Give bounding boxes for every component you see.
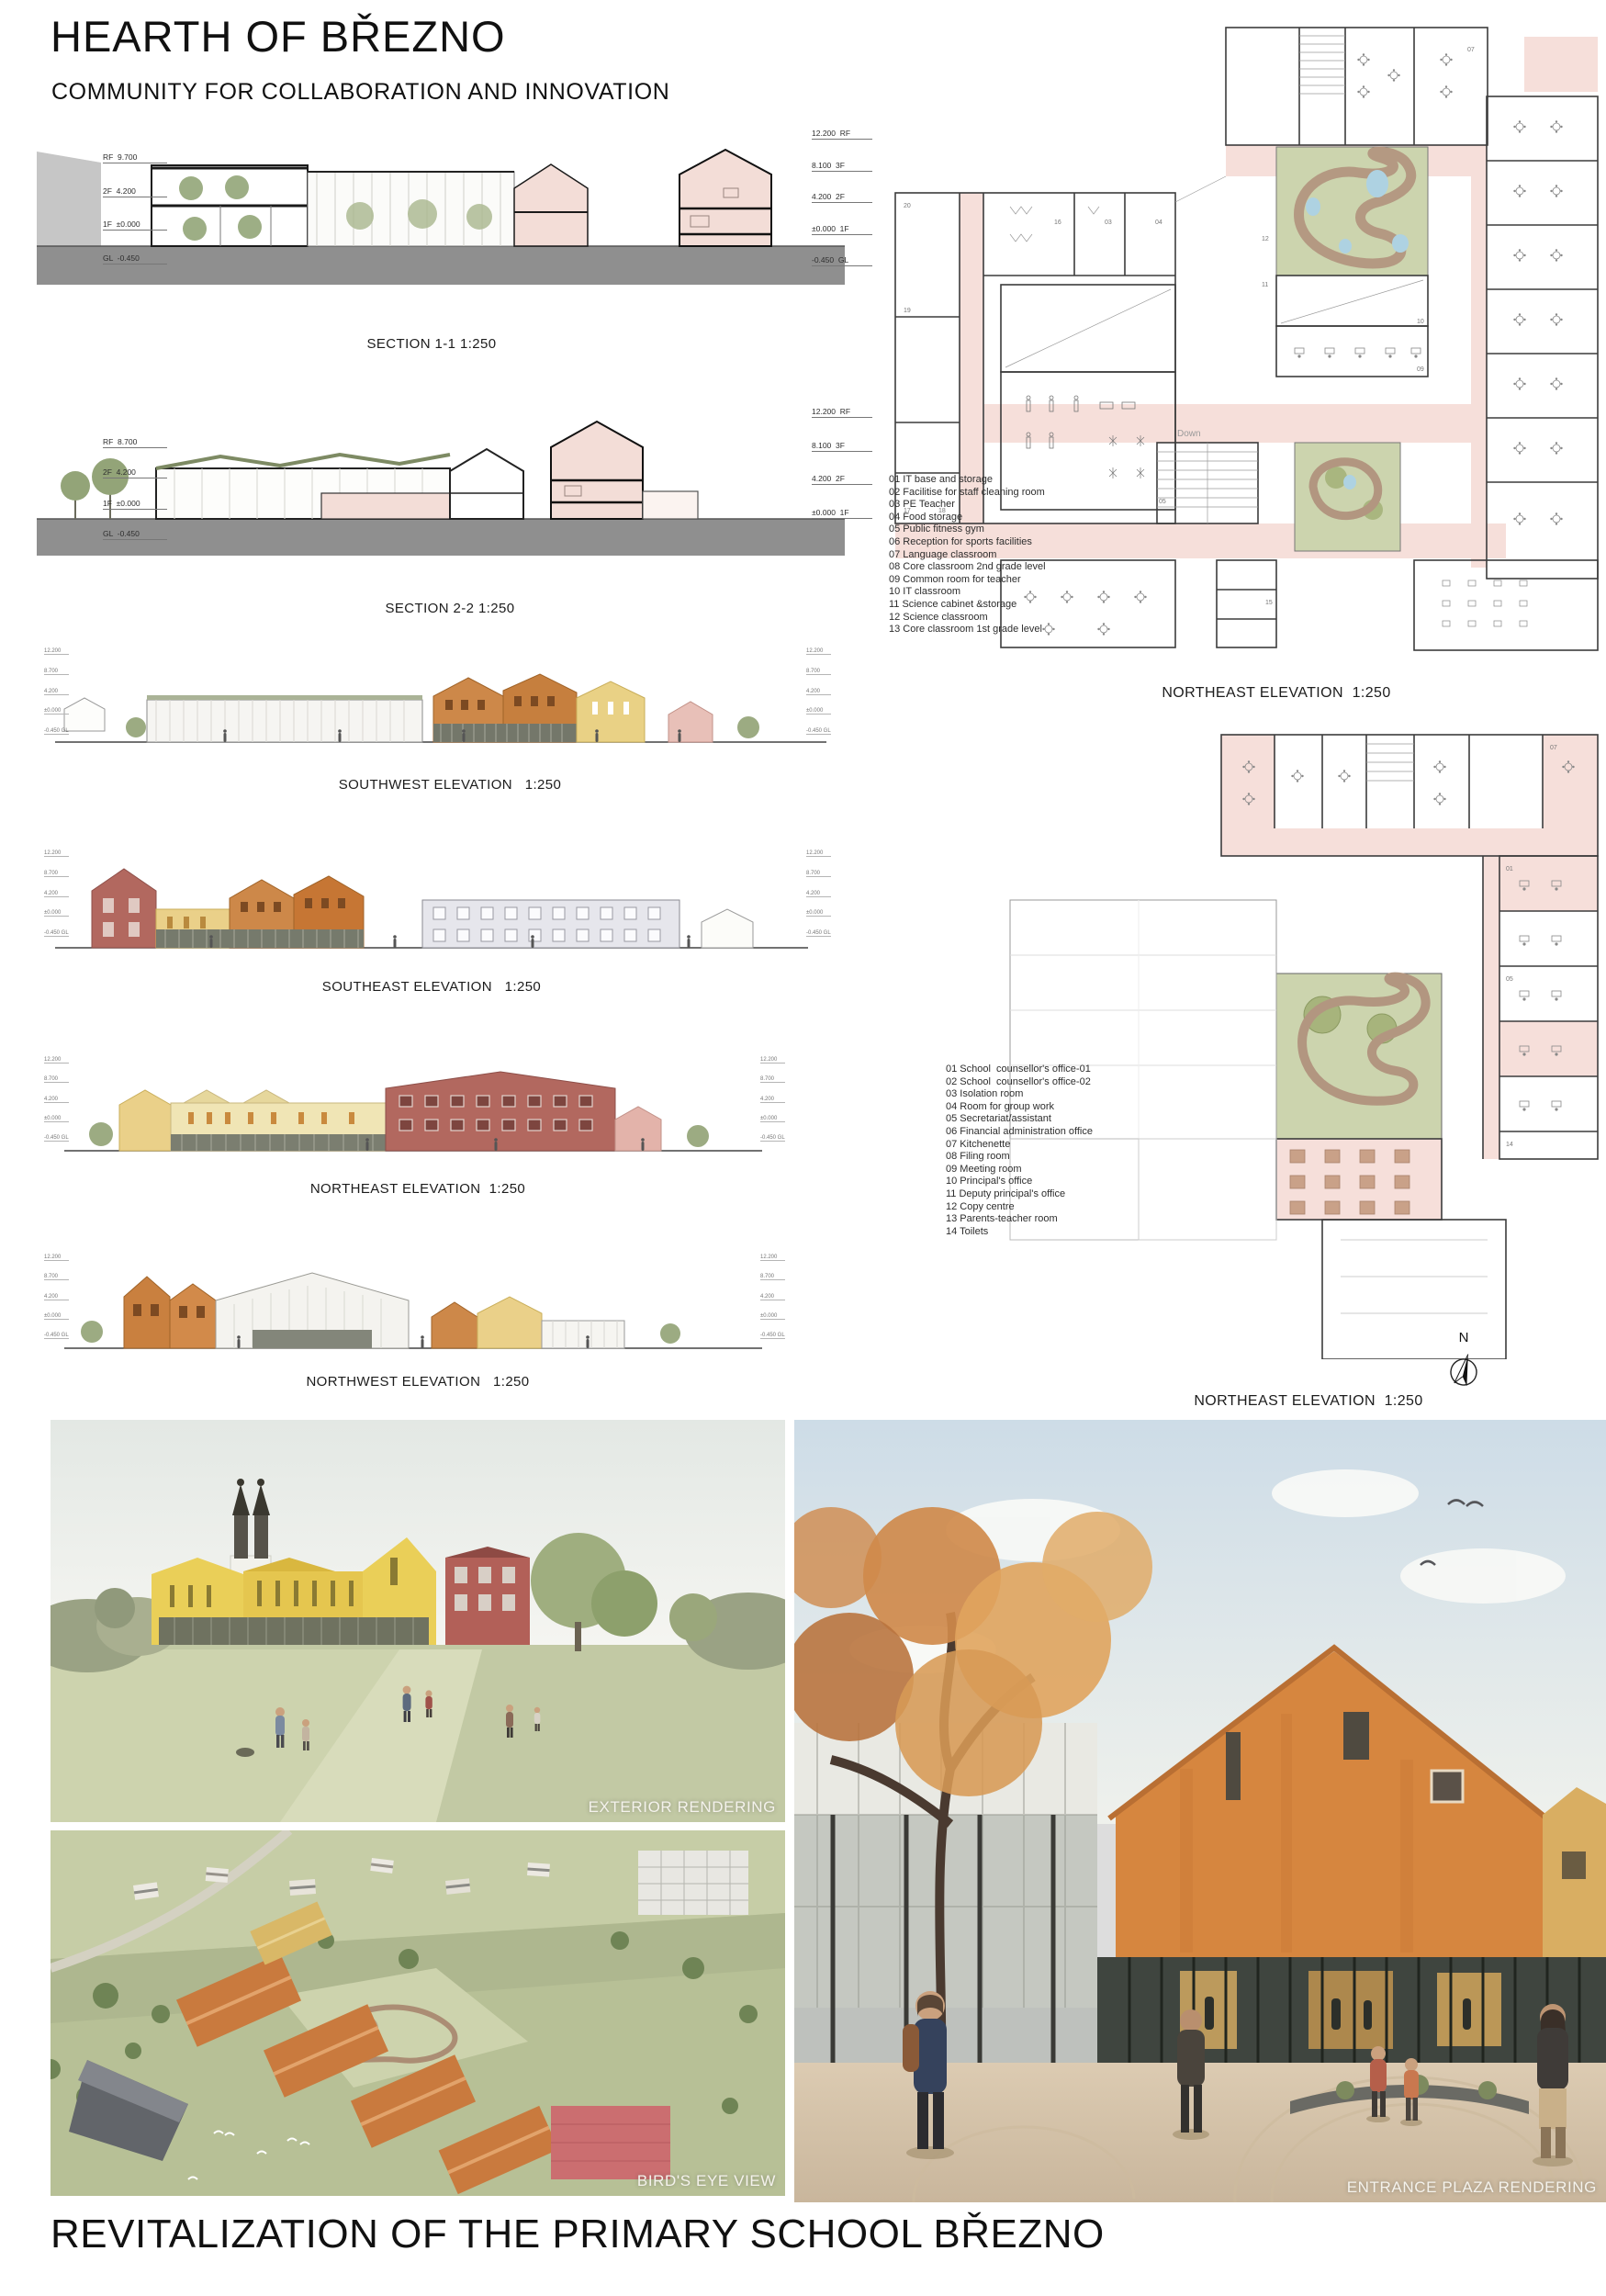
- section-1-levels-right: 12.200 RF8.100 3F4.200 2F±0.000 1F-0.450…: [812, 129, 872, 266]
- level-mark: -0.450 GL: [760, 1135, 785, 1142]
- level-mark: GL -0.450: [103, 529, 167, 540]
- page-subtitle: COMMUNITY FOR COLLABORATION AND INNOVATI…: [51, 79, 669, 106]
- legend-item: 05 Public fitness gym: [889, 523, 1164, 536]
- elevation-se-label: SOUTHEAST ELEVATION 1:250: [37, 979, 826, 995]
- svg-text:12: 12: [1262, 236, 1269, 242]
- legend-item: 10 IT classroom: [889, 586, 1164, 599]
- svg-text:03: 03: [1105, 219, 1112, 226]
- plan1-courtyard-2: [1295, 443, 1400, 551]
- floor-plan-2: 01 05 07 14: [955, 726, 1606, 1359]
- svg-text:15: 15: [1265, 600, 1273, 606]
- level-mark: ±0.000: [806, 708, 831, 715]
- level-mark: -0.450 GL: [806, 728, 831, 735]
- legend-item: 06 Reception for sports facilities: [889, 536, 1164, 549]
- legend-item: 08 Filing room: [946, 1151, 1221, 1164]
- level-mark: 12.200: [806, 850, 831, 857]
- level-mark: 1F ±0.000: [103, 219, 167, 231]
- plan1-down-label: Down: [1177, 429, 1201, 439]
- glazed-ground-floor: [1097, 1957, 1606, 2063]
- level-mark: 1F ±0.000: [103, 499, 167, 510]
- level-mark: 8.700: [44, 1274, 69, 1280]
- plan2-courtyard: [1276, 974, 1442, 1139]
- legend-item: 01 School counsellor's office-01: [946, 1064, 1221, 1076]
- level-mark: 2F 4.200: [103, 186, 167, 197]
- level-mark: 4.200: [806, 891, 831, 897]
- level-mark: 4.200: [44, 891, 69, 897]
- level-mark: -0.450 GL: [44, 1333, 69, 1339]
- elevation-sw-svg: [37, 643, 845, 762]
- north-arrow: [1447, 1348, 1480, 1392]
- elevation-ne-svg: [37, 1052, 799, 1171]
- level-mark: 4.200: [44, 1097, 69, 1103]
- svg-text:07: 07: [1467, 47, 1475, 53]
- north-label: N: [1447, 1330, 1480, 1345]
- legend-item: 02 Facilitise for staff cleaning room: [889, 487, 1164, 500]
- svg-text:04: 04: [1155, 219, 1162, 226]
- level-mark: 12.200: [760, 1057, 785, 1064]
- elevation-sw-drawing: [37, 643, 845, 762]
- level-mark: 4.200: [760, 1294, 785, 1300]
- level-mark: -0.450 GL: [806, 930, 831, 937]
- level-mark: 8.700: [44, 871, 69, 877]
- legend-item: 12 Science classroom: [889, 612, 1164, 625]
- legend-item: 11 Science cabinet &storage: [889, 599, 1164, 612]
- rendering-birdseye-svg: [51, 1830, 785, 2196]
- legend-item: 06 Financial administration office: [946, 1126, 1221, 1139]
- level-mark: 8.700: [760, 1076, 785, 1083]
- legend-item: 05 Secretariat/assistant: [946, 1113, 1221, 1126]
- elevation-ne-drawing: [37, 1052, 799, 1171]
- legend-item: 04 Room for group work: [946, 1101, 1221, 1114]
- svg-text:16: 16: [1054, 219, 1061, 226]
- legend-item: 13 Core classroom 1st grade level: [889, 624, 1164, 636]
- level-mark: ±0.000: [760, 1116, 785, 1122]
- section-1-label: SECTION 1-1 1:250: [37, 336, 826, 352]
- level-mark: 4.200: [806, 689, 831, 695]
- legend-item: 03 PE Teacher: [889, 499, 1164, 512]
- level-mark: 12.200 RF: [812, 407, 872, 418]
- rendering-birdseye-caption: BIRD'S EYE VIEW: [637, 2172, 776, 2190]
- elevation-nw-levels-right: 12.2008.7004.200±0.000-0.450 GL: [760, 1255, 785, 1339]
- rendering-exterior-caption: EXTERIOR RENDERING: [589, 1798, 776, 1817]
- plan-1-legend: 01 IT base and storage02 Facilitise for …: [889, 474, 1164, 636]
- elevation-nw-levels-left: 12.2008.7004.200±0.000-0.450 GL: [44, 1255, 69, 1339]
- legend-item: 04 Food storage: [889, 512, 1164, 524]
- plan1-courtyard: [1276, 147, 1428, 276]
- north-arrow-icon: [1447, 1348, 1480, 1392]
- floor-plan-2-svg: 01 05 07 14: [955, 726, 1606, 1359]
- svg-text:11: 11: [1262, 282, 1268, 288]
- rendering-birdseye: BIRD'S EYE VIEW: [51, 1830, 785, 2196]
- level-mark: -0.450 GL: [760, 1333, 785, 1339]
- legend-item: 12 Copy centre: [946, 1201, 1221, 1214]
- elevation-nw-label: NORTHWEST ELEVATION 1:250: [37, 1374, 799, 1390]
- level-mark: 8.100 3F: [812, 161, 872, 172]
- rendering-exterior-svg: [51, 1420, 785, 1822]
- level-mark: ±0.000: [44, 708, 69, 715]
- elevation-ne-label: NORTHEAST ELEVATION 1:250: [37, 1181, 799, 1197]
- section-2-levels-left: RF 8.7002F 4.2001F ±0.000GL -0.450: [103, 437, 167, 540]
- svg-text:05: 05: [1506, 976, 1513, 983]
- level-mark: 8.700: [806, 871, 831, 877]
- section-1-levels-left: RF 9.7002F 4.2001F ±0.000GL -0.450: [103, 152, 167, 264]
- level-mark: ±0.000: [44, 910, 69, 917]
- section-2-levels-right: 12.200 RF8.100 3F4.200 2F±0.000 1F: [812, 407, 872, 519]
- level-mark: -0.450 GL: [812, 255, 872, 266]
- elevation-se-levels-left: 12.2008.7004.200±0.000-0.450 GL: [44, 850, 69, 937]
- elevation-se-drawing: [37, 845, 845, 969]
- legend-item: 13 Parents-teacher room: [946, 1213, 1221, 1226]
- plan-1-label: NORTHEAST ELEVATION 1:250: [992, 685, 1561, 702]
- level-mark: 12.200: [44, 648, 69, 655]
- level-mark: GL -0.450: [103, 253, 167, 264]
- footer-title: REVITALIZATION OF THE PRIMARY SCHOOL BŘE…: [51, 2212, 1105, 2257]
- level-mark: 8.100 3F: [812, 441, 872, 452]
- level-mark: 8.700: [44, 669, 69, 675]
- svg-text:14: 14: [1506, 1142, 1513, 1148]
- elevation-se-svg: [37, 845, 845, 969]
- level-mark: 12.200 RF: [812, 129, 872, 140]
- legend-item: 03 Isolation room: [946, 1088, 1221, 1101]
- elevation-sw-label: SOUTHWEST ELEVATION 1:250: [37, 777, 863, 793]
- level-mark: ±0.000: [760, 1313, 785, 1320]
- svg-text:09: 09: [1417, 366, 1424, 373]
- legend-item: 09 Meeting room: [946, 1164, 1221, 1176]
- level-mark: -0.450 GL: [44, 930, 69, 937]
- level-mark: -0.450 GL: [44, 728, 69, 735]
- elevation-ne-levels-right: 12.2008.7004.200±0.000-0.450 GL: [760, 1057, 785, 1142]
- level-mark: 8.700: [806, 669, 831, 675]
- plan-2-label: NORTHEAST ELEVATION 1:250: [1024, 1393, 1593, 1410]
- page-title: HEARTH OF BŘEZNO: [51, 11, 506, 62]
- level-mark: ±0.000: [44, 1116, 69, 1122]
- rendering-entrance: ENTRANCE PLAZA RENDERING: [794, 1420, 1606, 2202]
- level-mark: 12.200: [44, 1255, 69, 1261]
- legend-item: 11 Deputy principal's office: [946, 1188, 1221, 1201]
- svg-text:01: 01: [1506, 866, 1513, 872]
- level-mark: ±0.000: [44, 1313, 69, 1320]
- legend-item: 01 IT base and storage: [889, 474, 1164, 487]
- level-mark: ±0.000 1F: [812, 224, 872, 235]
- level-mark: 12.200: [44, 1057, 69, 1064]
- elevation-se-levels-right: 12.2008.7004.200±0.000-0.450 GL: [806, 850, 831, 937]
- rendering-exterior: EXTERIOR RENDERING: [51, 1420, 785, 1822]
- presentation-board: HEARTH OF BŘEZNO COMMUNITY FOR COLLABORA…: [0, 0, 1606, 2296]
- level-mark: 4.200 2F: [812, 474, 872, 485]
- level-mark: ±0.000 1F: [812, 508, 872, 519]
- level-mark: RF 9.700: [103, 152, 167, 163]
- legend-item: 14 Toilets: [946, 1226, 1221, 1239]
- svg-text:07: 07: [1550, 745, 1557, 751]
- legend-item: 07 Language classroom: [889, 549, 1164, 562]
- section-2-label: SECTION 2-2 1:250: [37, 601, 863, 616]
- elevation-nw-svg: [37, 1249, 799, 1368]
- level-mark: 12.200: [760, 1255, 785, 1261]
- rendering-entrance-caption: ENTRANCE PLAZA RENDERING: [1347, 2178, 1597, 2197]
- svg-text:20: 20: [904, 203, 911, 209]
- elevation-ne-levels-left: 12.2008.7004.200±0.000-0.450 GL: [44, 1057, 69, 1142]
- svg-text:10: 10: [1417, 319, 1424, 325]
- level-mark: 4.200: [44, 689, 69, 695]
- level-mark: ±0.000: [806, 910, 831, 917]
- level-mark: 8.700: [44, 1076, 69, 1083]
- plan-2-legend: 01 School counsellor's office-0102 Schoo…: [946, 1064, 1221, 1238]
- level-mark: 12.200: [44, 850, 69, 857]
- level-mark: 8.700: [760, 1274, 785, 1280]
- level-mark: 4.200 2F: [812, 192, 872, 203]
- level-mark: -0.450 GL: [44, 1135, 69, 1142]
- legend-item: 08 Core classroom 2nd grade level: [889, 561, 1164, 574]
- level-mark: 4.200: [760, 1097, 785, 1103]
- legend-item: 07 Kitchenette: [946, 1139, 1221, 1152]
- legend-item: 09 Common room for teacher: [889, 574, 1164, 587]
- elevation-sw-levels-right: 12.2008.7004.200±0.000-0.450 GL: [806, 648, 831, 735]
- elevation-sw-levels-left: 12.2008.7004.200±0.000-0.450 GL: [44, 648, 69, 735]
- elevation-nw-drawing: [37, 1249, 799, 1368]
- legend-item: 02 School counsellor's office-02: [946, 1076, 1221, 1089]
- rendering-entrance-svg: [794, 1420, 1606, 2202]
- level-mark: 4.200: [44, 1294, 69, 1300]
- legend-item: 10 Principal's office: [946, 1176, 1221, 1188]
- svg-text:19: 19: [904, 308, 911, 314]
- level-mark: RF 8.700: [103, 437, 167, 448]
- level-mark: 12.200: [806, 648, 831, 655]
- level-mark: 2F 4.200: [103, 467, 167, 478]
